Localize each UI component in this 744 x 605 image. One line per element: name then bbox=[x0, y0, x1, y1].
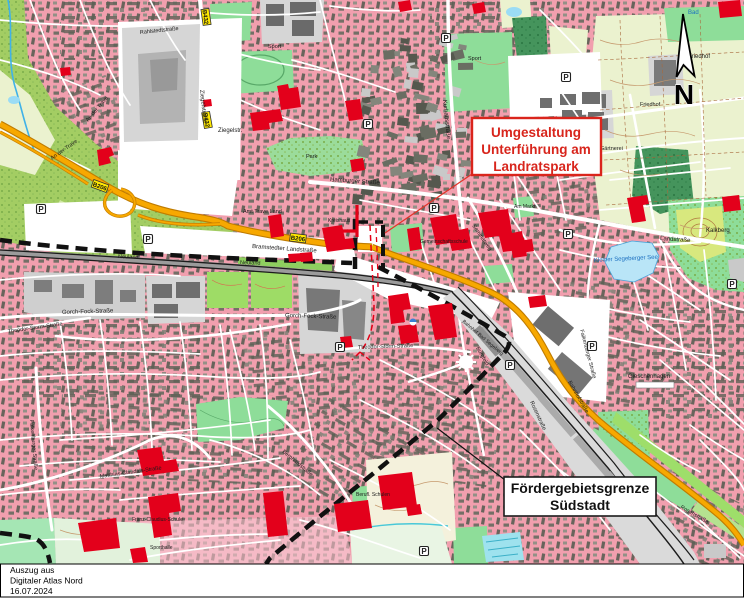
svg-text:Amt Trave Land: Amt Trave Land bbox=[243, 209, 282, 215]
svg-text:Bad: Bad bbox=[688, 10, 699, 16]
svg-text:Berufl. Schulen: Berufl. Schulen bbox=[356, 492, 390, 498]
svg-text:N: N bbox=[674, 79, 694, 110]
svg-text:Neuland: Neuland bbox=[118, 254, 139, 261]
svg-text:P: P bbox=[145, 235, 151, 244]
svg-text:P: P bbox=[421, 547, 427, 556]
svg-text:Auszug aus: Auszug aus bbox=[10, 565, 54, 575]
svg-text:P: P bbox=[563, 73, 569, 82]
svg-text:Gieschenhagen: Gieschenhagen bbox=[628, 374, 670, 380]
svg-text:P: P bbox=[565, 230, 571, 239]
svg-text:P: P bbox=[507, 361, 513, 370]
svg-text:Kalkberg: Kalkberg bbox=[706, 228, 730, 234]
svg-text:Sporthalle: Sporthalle bbox=[150, 545, 173, 551]
svg-text:Digitaler Atlas Nord: Digitaler Atlas Nord bbox=[10, 576, 83, 586]
svg-text:Park: Park bbox=[306, 154, 318, 160]
svg-text:Fördergebietsgrenze: Fördergebietsgrenze bbox=[511, 480, 650, 496]
svg-text:Umgestaltung: Umgestaltung bbox=[491, 125, 581, 140]
svg-text:P: P bbox=[365, 120, 371, 129]
svg-text:Unterführung am: Unterführung am bbox=[481, 142, 591, 157]
svg-text:Sport: Sport bbox=[468, 56, 482, 62]
svg-text:Ziegelstr.: Ziegelstr. bbox=[218, 128, 243, 134]
svg-text:P: P bbox=[38, 205, 44, 214]
svg-text:Südstadt: Südstadt bbox=[550, 497, 610, 513]
svg-text:Gemeinschaftsschule: Gemeinschaftsschule bbox=[420, 239, 468, 245]
svg-text:P: P bbox=[729, 280, 735, 289]
svg-text:Franz-Claudius-Schule: Franz-Claudius-Schule bbox=[132, 517, 183, 523]
svg-text:16.07.2024: 16.07.2024 bbox=[10, 586, 53, 596]
svg-text:Kreishaus: Kreishaus bbox=[328, 218, 351, 224]
svg-text:Gärtnerei: Gärtnerei bbox=[600, 146, 623, 152]
svg-text:Sport: Sport bbox=[268, 44, 282, 50]
svg-text:Neuland: Neuland bbox=[240, 260, 261, 267]
svg-text:Am Markt: Am Markt bbox=[514, 204, 536, 210]
svg-text:Friedhof: Friedhof bbox=[640, 102, 661, 108]
svg-text:P: P bbox=[443, 34, 449, 43]
svg-text:P: P bbox=[337, 343, 343, 352]
svg-text:Landratspark: Landratspark bbox=[493, 159, 579, 174]
svg-text:P: P bbox=[431, 204, 437, 213]
